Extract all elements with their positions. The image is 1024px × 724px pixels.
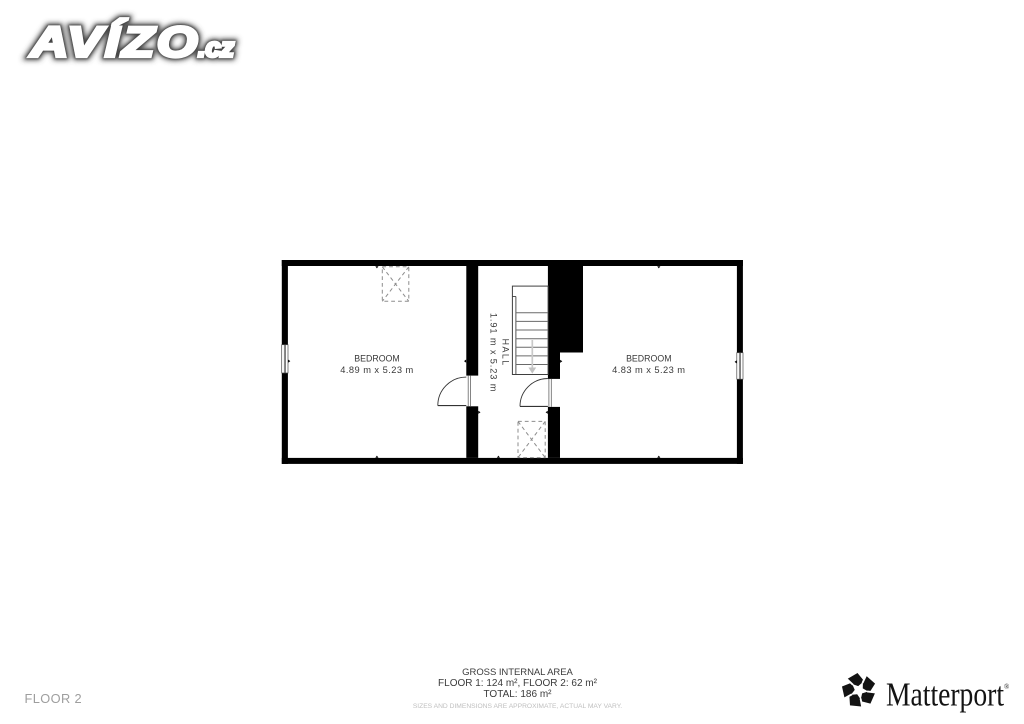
- svg-text:Matterport: Matterport: [886, 677, 1004, 714]
- svg-text:1.91 m x 5.23 m: 1.91 m x 5.23 m: [488, 313, 498, 392]
- svg-text:BEDROOM: BEDROOM: [354, 354, 399, 364]
- svg-text:BEDROOM: BEDROOM: [626, 354, 671, 364]
- svg-text:4.83 m x 5.23 m: 4.83 m x 5.23 m: [612, 365, 685, 375]
- svg-text:HALL: HALL: [501, 339, 511, 367]
- svg-text:4.89 m x 5.23 m: 4.89 m x 5.23 m: [340, 365, 413, 375]
- svg-text:®: ®: [1004, 683, 1010, 691]
